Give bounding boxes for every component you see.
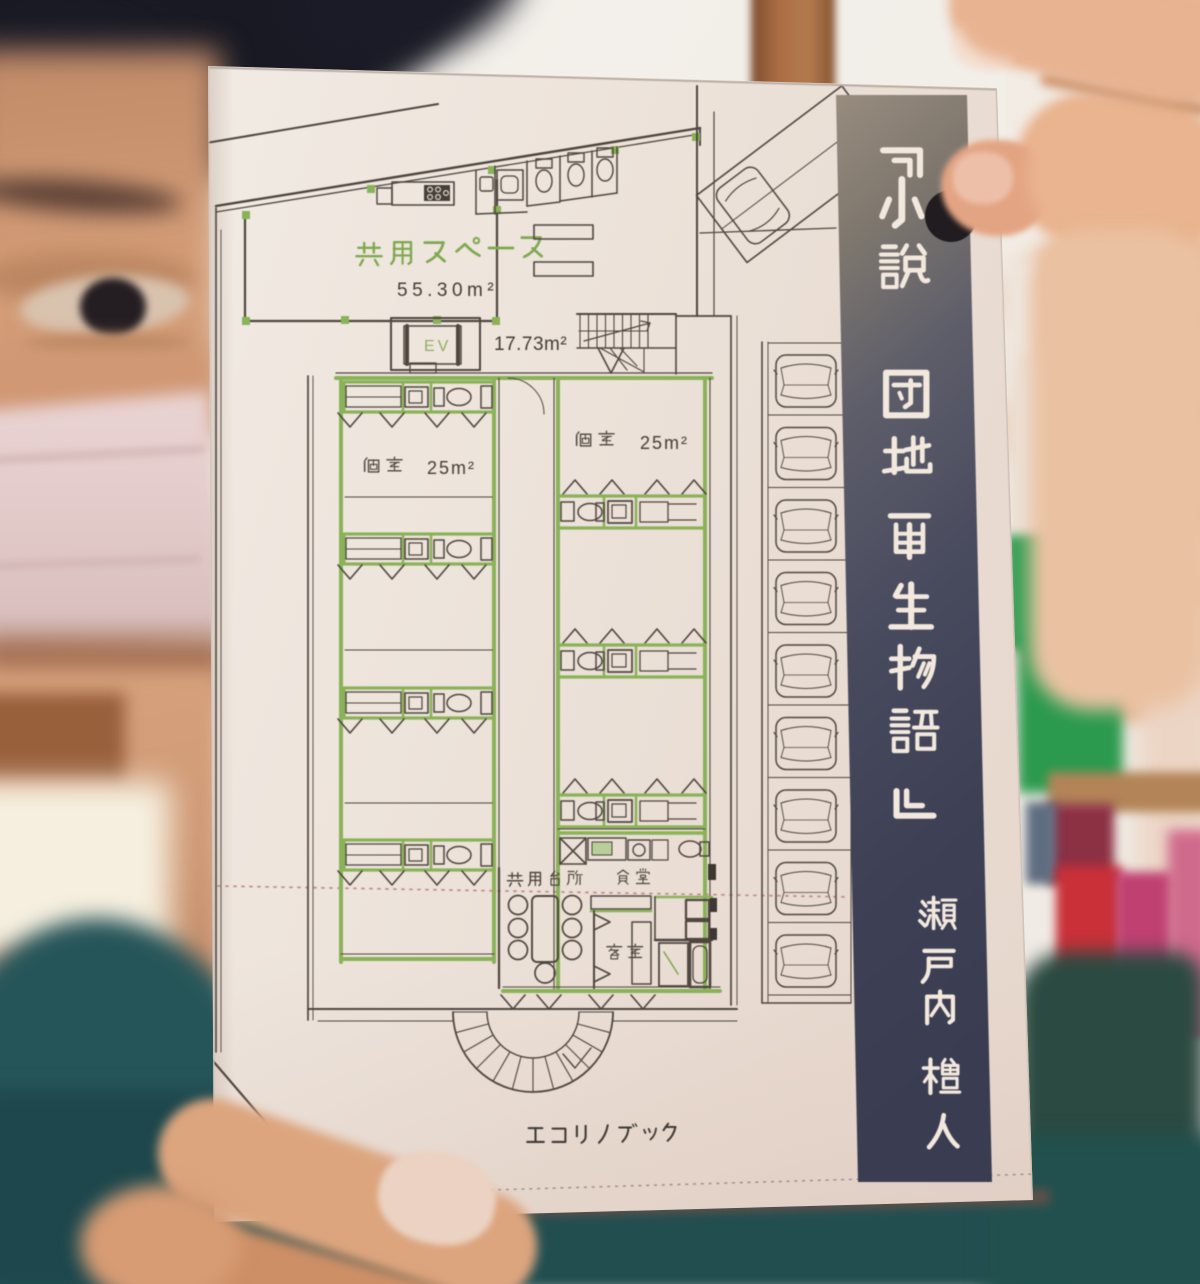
svg-text:17.73m²: 17.73m² [494,334,567,355]
svg-text:25m²: 25m² [640,433,689,453]
svg-text:25m²: 25m² [427,458,476,478]
svg-text:EV: EV [424,338,451,355]
svg-text:55.30m²: 55.30m² [397,280,498,301]
